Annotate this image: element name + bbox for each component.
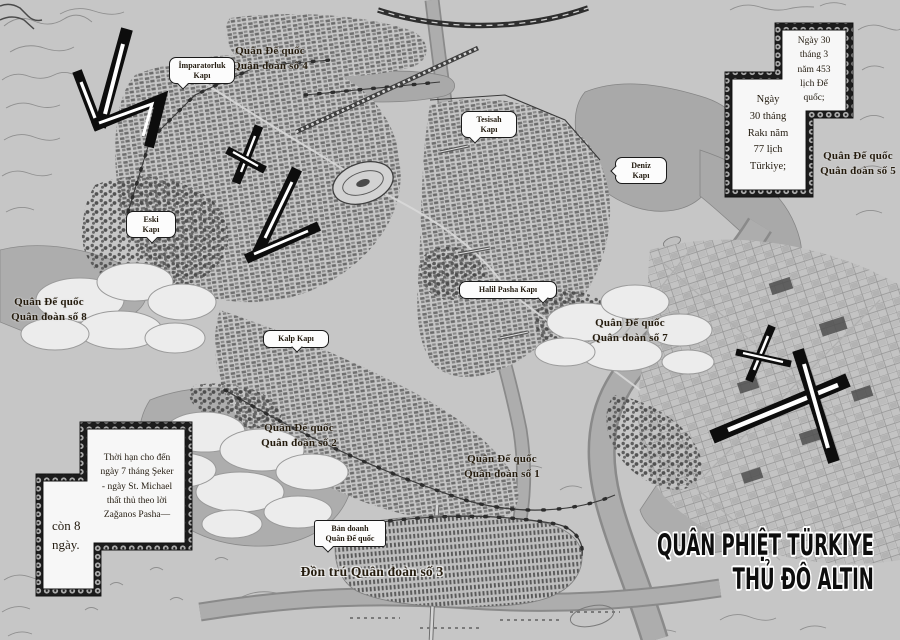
- caption-line: 30 tháng: [729, 109, 807, 126]
- gate-label-imperial-hq: Bản doanh Quân Đế quốc: [314, 520, 386, 547]
- gate-label-line: Tesisah: [465, 115, 513, 125]
- caption-date-turkiye: Ngày 30 tháng Rakı năm 77 lịch Türkiye;: [729, 92, 807, 176]
- caption-line: tháng 3: [780, 48, 848, 62]
- army-label-corps-3-garrison: Đồn trú Quân đoàn số 3: [262, 563, 482, 581]
- caption-deadline: Thời hạn cho đến ngày 7 tháng Şeker - ng…: [90, 451, 184, 522]
- army-label-line: Quân Đế quốc: [432, 452, 572, 467]
- gate-label-tesisah-kapi: Tesisah Kapı: [461, 111, 517, 138]
- army-label-corps-8: Quân Đế quốc Quân đoàn số 8: [0, 295, 119, 324]
- caption-line: lịch Đế: [780, 77, 848, 91]
- caption-line: Ngày: [729, 92, 807, 109]
- army-label-line: Quân đoàn số 7: [560, 331, 700, 346]
- manga-map-page: İmparatorluk Kapı Tesisah Kapı Deniz Kap…: [0, 0, 900, 640]
- caption-line: ngày.: [52, 536, 96, 555]
- caption-line: Zağanos Pasha—: [90, 508, 184, 522]
- gate-label-imparatorluk-kapi: İmparatorluk Kapı: [169, 57, 235, 84]
- gate-label-line: Kapı: [465, 125, 513, 135]
- caption-line: Ngày 30: [780, 34, 848, 48]
- army-label-line: Quân Đế quốc: [560, 316, 700, 331]
- caption-line: 77 lịch: [729, 142, 807, 159]
- caption-line: Türkiye;: [729, 159, 807, 176]
- gate-label-line: İmparatorluk: [173, 61, 231, 71]
- army-label-line: Quân đoàn số 2: [229, 436, 369, 451]
- page-title-line: QUÂN PHIỆT TÜRKIYE: [657, 528, 874, 562]
- army-label-line: Quân đoàn số 8: [0, 310, 119, 325]
- gate-label-kalp-kapi: Kalp Kapı: [263, 330, 329, 348]
- army-label-corps-7: Quân Đế quốc Quân đoàn số 7: [560, 316, 700, 345]
- gate-label-line: Bản doanh: [318, 524, 382, 534]
- caption-countdown: còn 8 ngày.: [52, 517, 96, 555]
- caption-line: năm 453: [780, 63, 848, 77]
- gate-label-line: Halil Pasha Kapı: [463, 285, 553, 295]
- caption-line: Thời hạn cho đến: [90, 451, 184, 465]
- army-label-corps-2: Quân Đế quốc Quân đoàn số 2: [229, 421, 369, 450]
- caption-line: thất thủ theo lời: [90, 494, 184, 508]
- army-label-corps-1: Quân Đế quốc Quân đoàn số 1: [432, 452, 572, 481]
- army-label-line: Đồn trú Quân đoàn số 3: [262, 563, 482, 581]
- page-title-line: THỦ ĐÔ ALTIN: [657, 562, 874, 596]
- caption-line: - ngày St. Michael: [90, 480, 184, 494]
- caption-line: ngày 7 tháng Şeker: [90, 465, 184, 479]
- gate-label-eski-kapi: Eski Kapı: [126, 211, 176, 238]
- gate-label-line: Deniz: [619, 161, 663, 171]
- caption-line: còn 8: [52, 517, 96, 536]
- gate-label-line: Eski: [130, 215, 172, 225]
- caption-line: Rakı năm: [729, 126, 807, 143]
- gate-label-deniz-kapi: Deniz Kapı: [615, 157, 667, 184]
- army-label-line: Quân đoàn số 1: [432, 467, 572, 482]
- gate-label-line: Kapı: [619, 171, 663, 181]
- army-label-line: Quân Đế quốc: [229, 421, 369, 436]
- army-label-line: Quân Đế quốc: [0, 295, 119, 310]
- page-title: QUÂN PHIỆT TÜRKIYE THỦ ĐÔ ALTIN: [524, 528, 874, 596]
- gate-label-halil-pasha-kapi: Halil Pasha Kapı: [459, 281, 557, 299]
